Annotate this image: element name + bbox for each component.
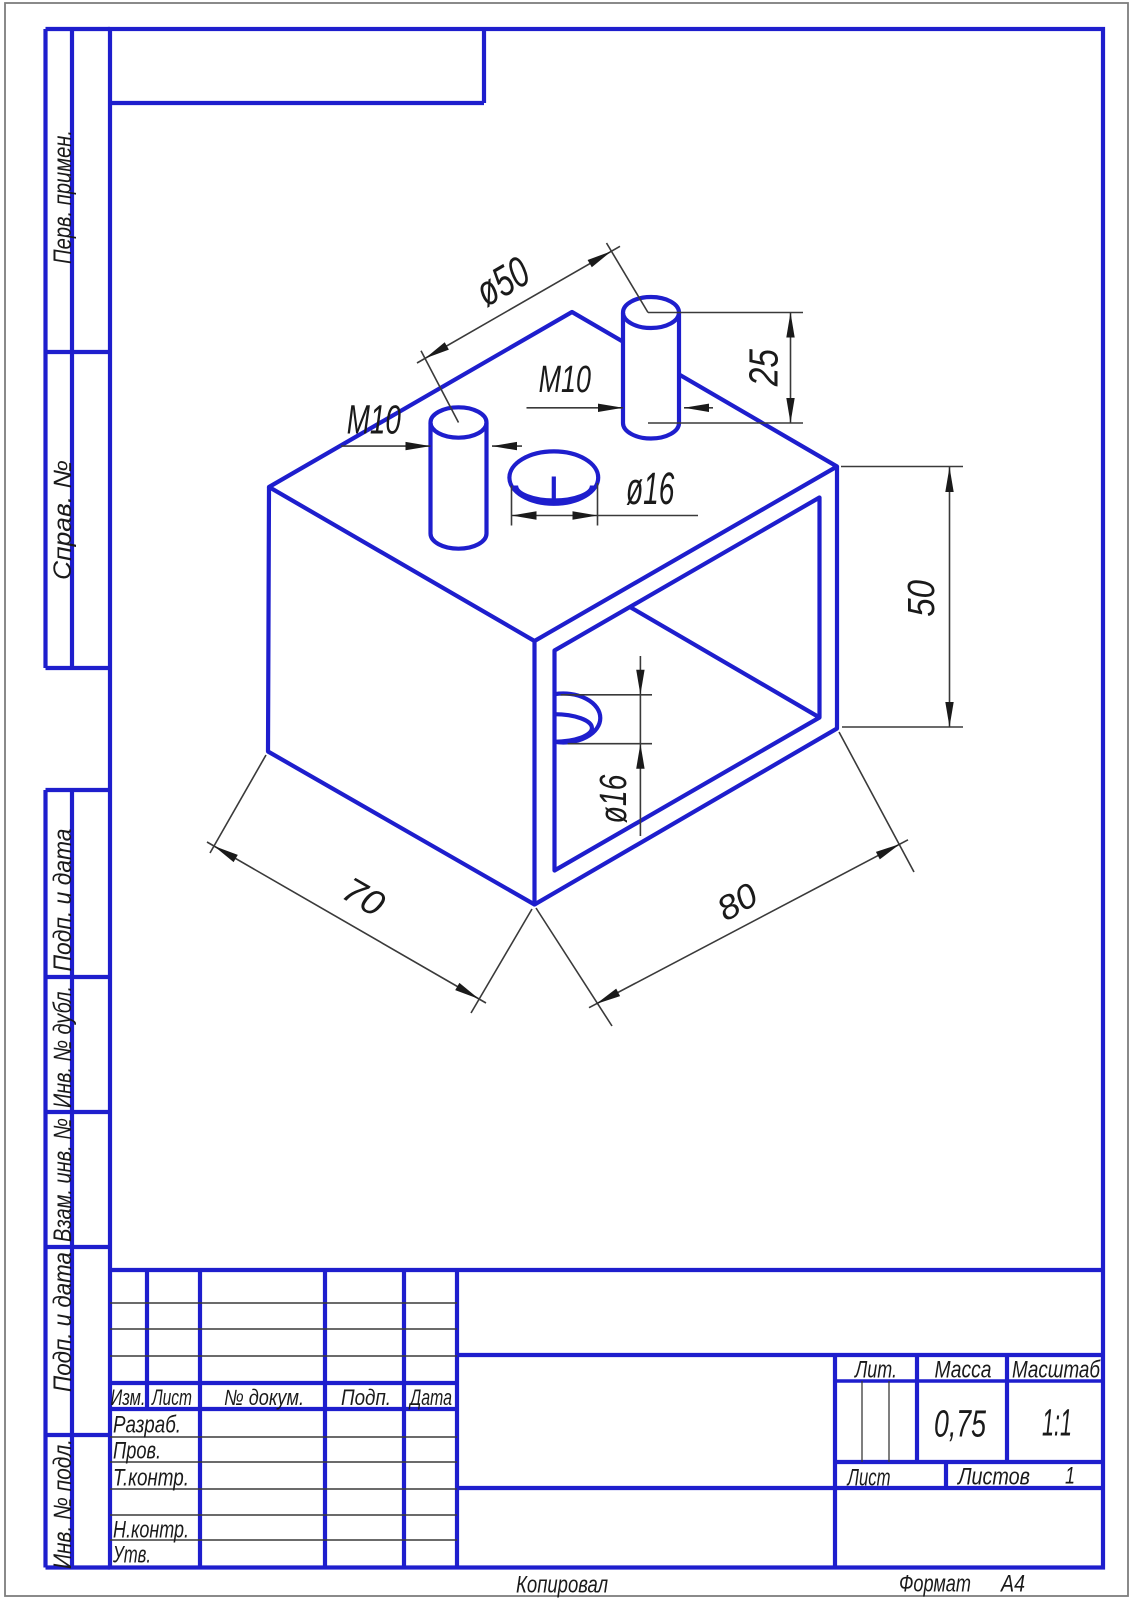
svg-text:0,75: 0,75 xyxy=(934,1404,987,1446)
svg-text:Лист: Лист xyxy=(151,1385,192,1410)
svg-text:ø16: ø16 xyxy=(626,463,675,514)
svg-text:ø16: ø16 xyxy=(593,774,635,823)
svg-text:M10: M10 xyxy=(347,397,401,443)
svg-text:Перв. примен.: Перв. примен. xyxy=(49,130,77,264)
svg-text:Разраб.: Разраб. xyxy=(113,1412,181,1439)
svg-text:Утв.: Утв. xyxy=(112,1542,151,1569)
svg-text:Инв. № дубл.: Инв. № дубл. xyxy=(49,986,77,1108)
svg-text:M10: M10 xyxy=(539,359,591,401)
svg-text:А4: А4 xyxy=(999,1571,1025,1598)
svg-text:Изм.: Изм. xyxy=(111,1385,146,1410)
svg-text:80: 80 xyxy=(711,876,765,929)
svg-text:50: 50 xyxy=(901,580,943,617)
svg-text:Инв. № подл.: Инв. № подл. xyxy=(49,1439,77,1569)
svg-text:Дата: Дата xyxy=(408,1385,452,1410)
svg-text:№ докум.: № докум. xyxy=(224,1385,304,1410)
svg-text:Лист: Лист xyxy=(846,1465,890,1492)
svg-text:Лит.: Лит. xyxy=(854,1357,897,1384)
svg-text:Подп. и дата: Подп. и дата xyxy=(49,828,77,971)
svg-text:Взам. инв. №: Взам. инв. № xyxy=(49,1118,77,1242)
svg-text:1:1: 1:1 xyxy=(1042,1403,1072,1445)
svg-text:1: 1 xyxy=(1065,1463,1075,1490)
svg-text:Формат: Формат xyxy=(899,1571,971,1598)
svg-text:Н.контр.: Н.контр. xyxy=(113,1517,189,1544)
svg-text:70: 70 xyxy=(335,869,391,925)
svg-text:Масса: Масса xyxy=(935,1357,992,1384)
svg-text:Справ. №: Справ. № xyxy=(49,460,77,580)
svg-text:Подп. и дата: Подп. и дата xyxy=(49,1252,77,1392)
svg-text:Подп.: Подп. xyxy=(341,1385,391,1410)
svg-text:Копировал: Копировал xyxy=(516,1572,608,1599)
svg-text:Масштаб: Масштаб xyxy=(1012,1357,1101,1384)
svg-text:Т.контр.: Т.контр. xyxy=(113,1465,189,1492)
svg-text:25: 25 xyxy=(740,349,786,387)
svg-text:Листов: Листов xyxy=(956,1464,1030,1491)
svg-text:Пров.: Пров. xyxy=(113,1438,161,1465)
svg-text:ø50: ø50 xyxy=(467,248,538,317)
